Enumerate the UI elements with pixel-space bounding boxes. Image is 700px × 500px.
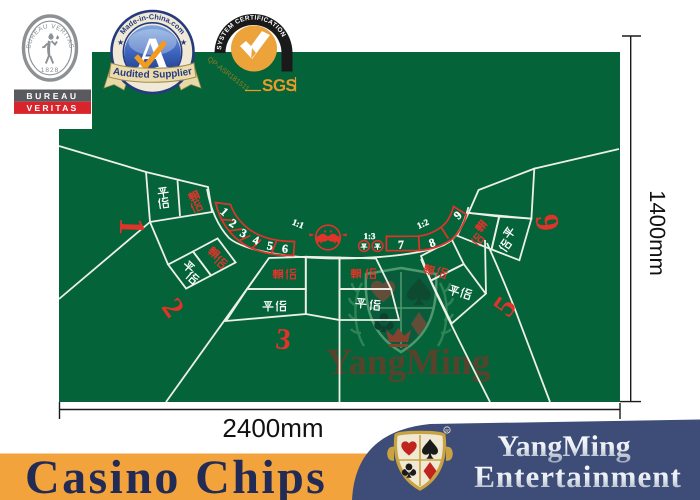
svg-text:7: 7	[398, 238, 404, 252]
svg-text:SGS: SGS	[262, 76, 297, 95]
svg-text:Casino Chips: Casino Chips	[25, 451, 327, 500]
svg-text:Entertainment: Entertainment	[474, 459, 682, 494]
svg-text:1828: 1828	[41, 67, 59, 74]
svg-text:★: ★	[117, 38, 124, 47]
svg-text:YangMing: YangMing	[326, 342, 491, 383]
svg-text:BUREAU: BUREAU	[26, 91, 78, 101]
svg-text:6: 6	[282, 242, 289, 256]
svg-text:VERITAS: VERITAS	[26, 103, 78, 113]
svg-text:1400mm: 1400mm	[645, 190, 670, 276]
svg-text:1:3: 1:3	[364, 231, 376, 241]
svg-text:2400mm: 2400mm	[222, 413, 323, 443]
svg-text:★: ★	[180, 38, 187, 47]
svg-text:1: 1	[112, 217, 153, 236]
svg-text:R: R	[445, 428, 449, 434]
